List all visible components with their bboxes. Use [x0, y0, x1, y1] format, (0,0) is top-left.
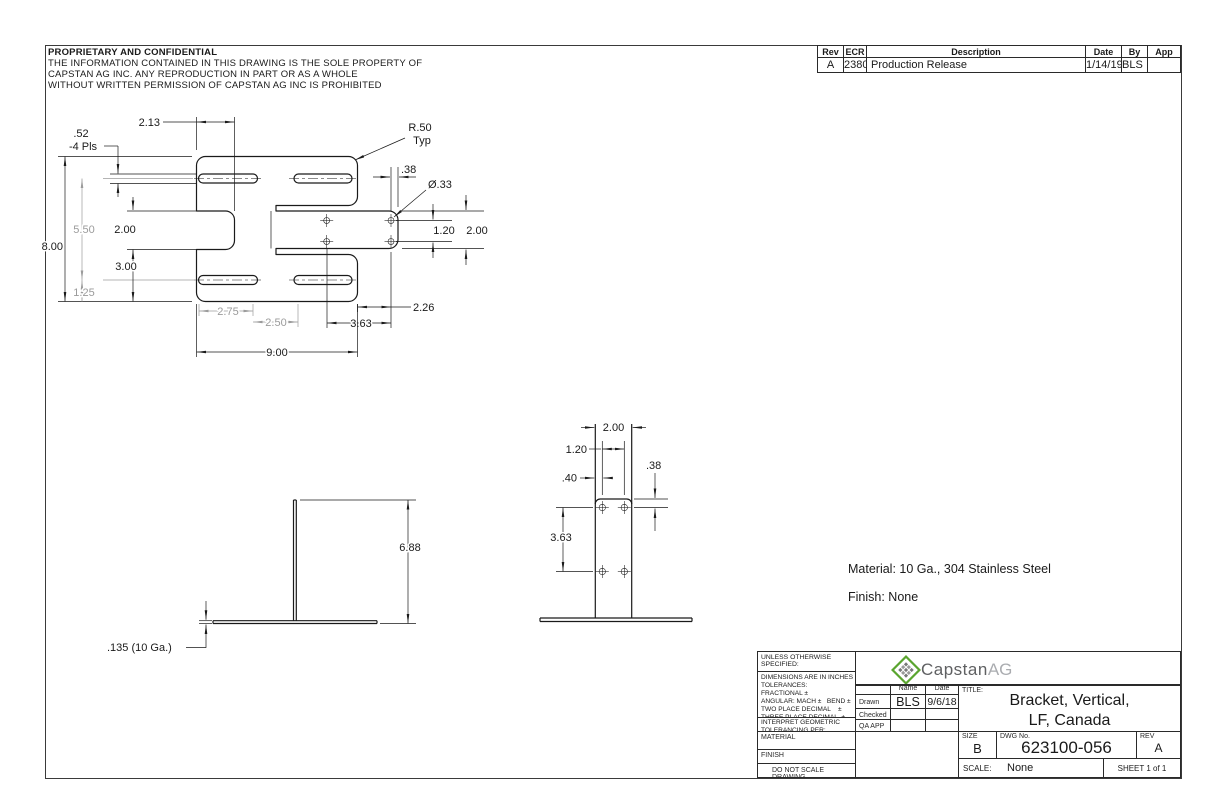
side-view-dimensions: 6.88 .135 (10 Ga.) — [107, 500, 421, 654]
scale-label: SCALE: — [963, 764, 991, 773]
interpret-box: INTERPRET GEOMETRIC TOLERANCING PER: — [757, 717, 856, 732]
do-not-scale: DO NOT SCALE DRAWING — [757, 763, 856, 778]
title-box: TITLE: Bracket, Vertical, LF, Canada — [958, 684, 1181, 732]
dim-688: 6.88 — [399, 542, 420, 554]
dim-125: 1.25 — [73, 287, 94, 299]
capstan-logo-icon — [891, 655, 921, 685]
dim-120: 1.20 — [433, 225, 454, 237]
scale-value: None — [1007, 762, 1033, 774]
dim-363: 3.63 — [350, 318, 371, 330]
dim-200-flange: 2.00 — [466, 225, 487, 237]
dim-550: 5.50 — [73, 224, 94, 236]
tolerance-line: FRACTIONAL ± — [761, 690, 855, 698]
dim-275: 2.75 — [217, 306, 238, 318]
dim-52: .52 — [73, 128, 88, 140]
tolerance-line: TWO PLACE DECIMAL ± — [761, 706, 855, 714]
dim-226: 2.26 — [413, 302, 434, 314]
dim-r50: R.50 — [408, 122, 431, 134]
dim-f38: .38 — [646, 460, 661, 472]
dim-800: 8.00 — [42, 241, 63, 253]
dim-213: 2.13 — [139, 117, 160, 129]
finish-note: Finish: None — [848, 590, 918, 604]
dim-900: 9.00 — [266, 347, 287, 359]
scale-box: SCALE: None — [958, 758, 1104, 778]
logo-text-capstan: Capstan — [921, 660, 988, 680]
material-label: MATERIAL — [757, 731, 856, 750]
dim-f200: 2.00 — [603, 422, 624, 434]
dim-250: 2.50 — [265, 317, 286, 329]
tolerance-line: DIMENSIONS ARE IN INCHES — [761, 674, 855, 682]
dim-52-note: -4 Pls — [69, 141, 98, 153]
size-box: SIZE B — [958, 731, 997, 759]
front-view-holes — [596, 501, 631, 578]
material-note: Material: 10 Ga., 304 Stainless Steel — [848, 562, 1051, 576]
dim-300: 3.00 — [115, 261, 136, 273]
dim-f120: 1.20 — [566, 444, 587, 456]
size-label: SIZE — [962, 733, 978, 740]
approvals-empty-box — [855, 731, 959, 778]
rev-label: REV — [1140, 733, 1154, 740]
tolerances-box: DIMENSIONS ARE IN INCHES TOLERANCES: FRA… — [757, 671, 856, 718]
dim-thickness: .135 (10 Ga.) — [107, 642, 172, 654]
logo-text-ag: AG — [988, 660, 1013, 680]
capstan-logo: CapstanAG — [891, 655, 1012, 685]
unless-otherwise: UNLESS OTHERWISE SPECIFIED: — [757, 651, 856, 672]
logo-box: CapstanAG — [855, 651, 1181, 686]
dwg-box: DWG No. 623100-056 — [996, 731, 1137, 759]
finish-label: FINISH — [757, 749, 856, 764]
tolerance-line: ANGULAR: MACH ± BEND ± — [761, 698, 855, 706]
rev-value-block: A — [1137, 741, 1180, 755]
tolerance-line: TOLERANCES: — [761, 682, 855, 690]
dim-38: .38 — [401, 164, 416, 176]
interpret-line: INTERPRET GEOMETRIC — [761, 719, 855, 727]
dwg-number: 623100-056 — [997, 738, 1136, 758]
drawing-sheet: PROPRIETARY AND CONFIDENTIAL THE INFORMA… — [0, 0, 1224, 792]
dim-f363: 3.63 — [550, 532, 571, 544]
drawn-label: Drawn — [855, 694, 891, 709]
drawn-name: BLS — [890, 694, 926, 709]
flange-holes — [320, 214, 397, 248]
front-view: 2.00 1.20 .40 .38 3.63 — [540, 422, 692, 622]
dim-f40: .40 — [562, 473, 577, 485]
rev-box: REV A — [1136, 731, 1181, 759]
dim-200-notch: 2.00 — [114, 224, 135, 236]
top-view-dimensions: 2.13 .52 -4 Pls R.50 Typ .38 — [42, 117, 488, 359]
size-value: B — [959, 741, 996, 756]
side-view: 6.88 .135 (10 Ga.) — [107, 500, 421, 654]
drawn-date: 9/6/18 — [925, 694, 959, 709]
front-view-dimensions: 2.00 1.20 .40 .38 3.63 — [550, 422, 668, 572]
sheet-box: SHEET 1 of 1 — [1103, 758, 1181, 778]
dim-dia33: Ø.33 — [428, 179, 452, 191]
title-line-1: Bracket, Vertical, — [959, 692, 1180, 710]
dim-r50-note: Typ — [413, 135, 431, 147]
title-line-2: LF, Canada — [959, 712, 1180, 730]
top-view: 2.13 .52 -4 Pls R.50 Typ .38 — [42, 117, 488, 359]
